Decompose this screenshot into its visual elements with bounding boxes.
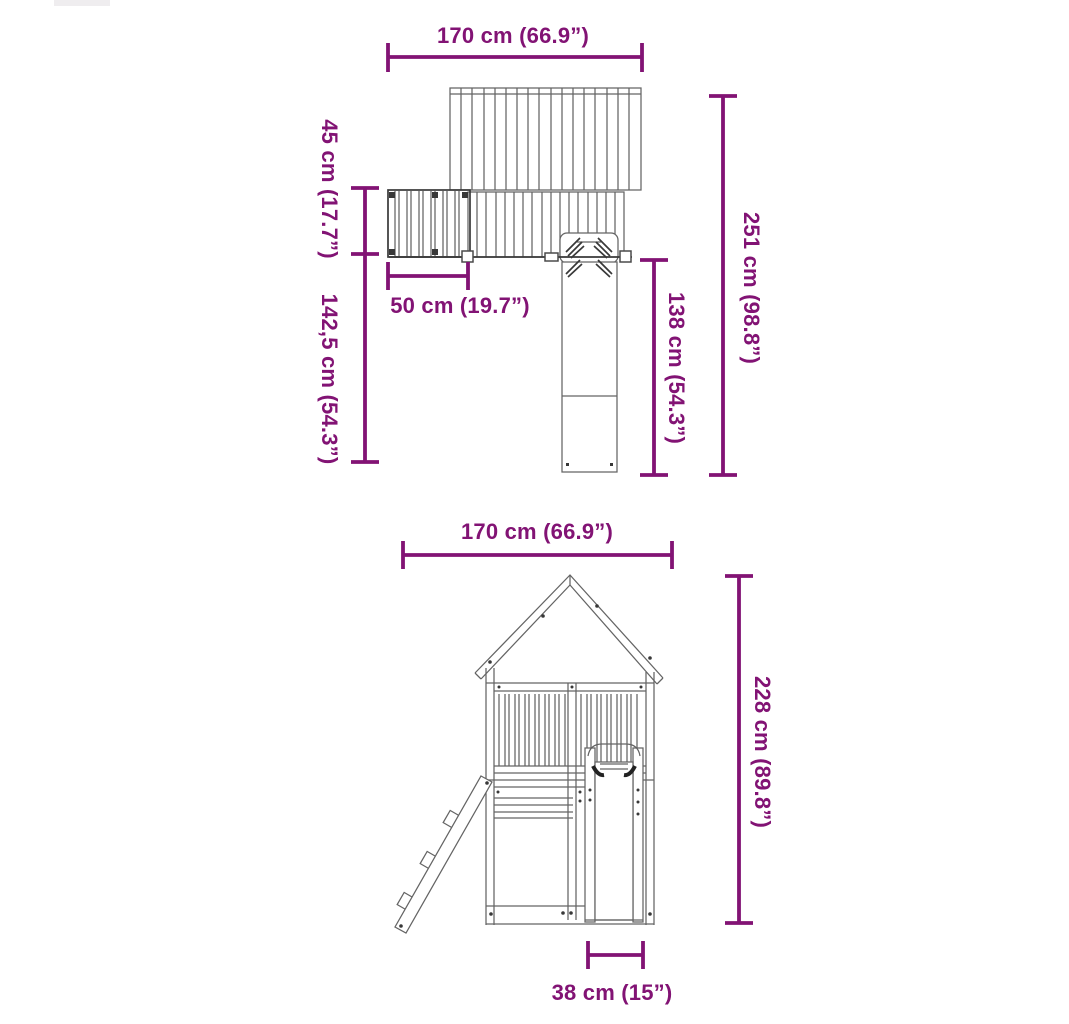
post-cap-left	[462, 251, 473, 262]
railing-top-rail	[486, 683, 654, 691]
front-view-dimensions	[403, 541, 753, 969]
railing-slats-front	[494, 694, 646, 773]
slide-width-dimension-line	[588, 941, 643, 969]
front-view-structure	[395, 575, 663, 933]
post-cap-right	[620, 251, 631, 262]
roof-top-view	[450, 88, 641, 190]
ladder-front-view	[395, 776, 492, 933]
total-depth-label: 251 cm (98.8”)	[738, 212, 764, 364]
ladder-depth-label: 45 cm (17.7”)	[316, 119, 342, 259]
top-view-width-label: 170 cm (66.9”)	[437, 23, 589, 49]
post-foot-left	[545, 253, 558, 261]
front-width-dimension-line	[403, 541, 672, 569]
front-view-width-label: 170 cm (66.9”)	[461, 519, 613, 545]
total-depth-dimension-line	[709, 96, 737, 475]
slide-length-label: 138 cm (54.3”)	[663, 292, 689, 444]
slide-top-view	[562, 260, 617, 472]
top-view-structure	[388, 88, 641, 472]
playhouse-dimension-diagram: 170 cm (66.9”) 45 cm (17.7”) 142,5 cm (5…	[0, 0, 1069, 1024]
slide-front-view	[585, 744, 643, 922]
ladder-width-label: 50 cm (19.7”)	[390, 293, 530, 319]
ladder-top-view	[388, 190, 470, 257]
slide-entrance-top-view	[560, 233, 618, 263]
diagram-drawing	[0, 0, 1069, 1024]
depth-below-platform-label: 142,5 cm (54.3”)	[316, 294, 342, 465]
slide-width-label: 38 cm (15”)	[552, 980, 673, 1006]
left-depth-dimension-line	[351, 188, 379, 462]
roof-front-view	[475, 575, 663, 684]
ladder-width-dimension-line	[388, 262, 468, 290]
front-view-height-label: 228 cm (89.8”)	[749, 676, 775, 828]
image-edge-artifact	[54, 0, 110, 6]
